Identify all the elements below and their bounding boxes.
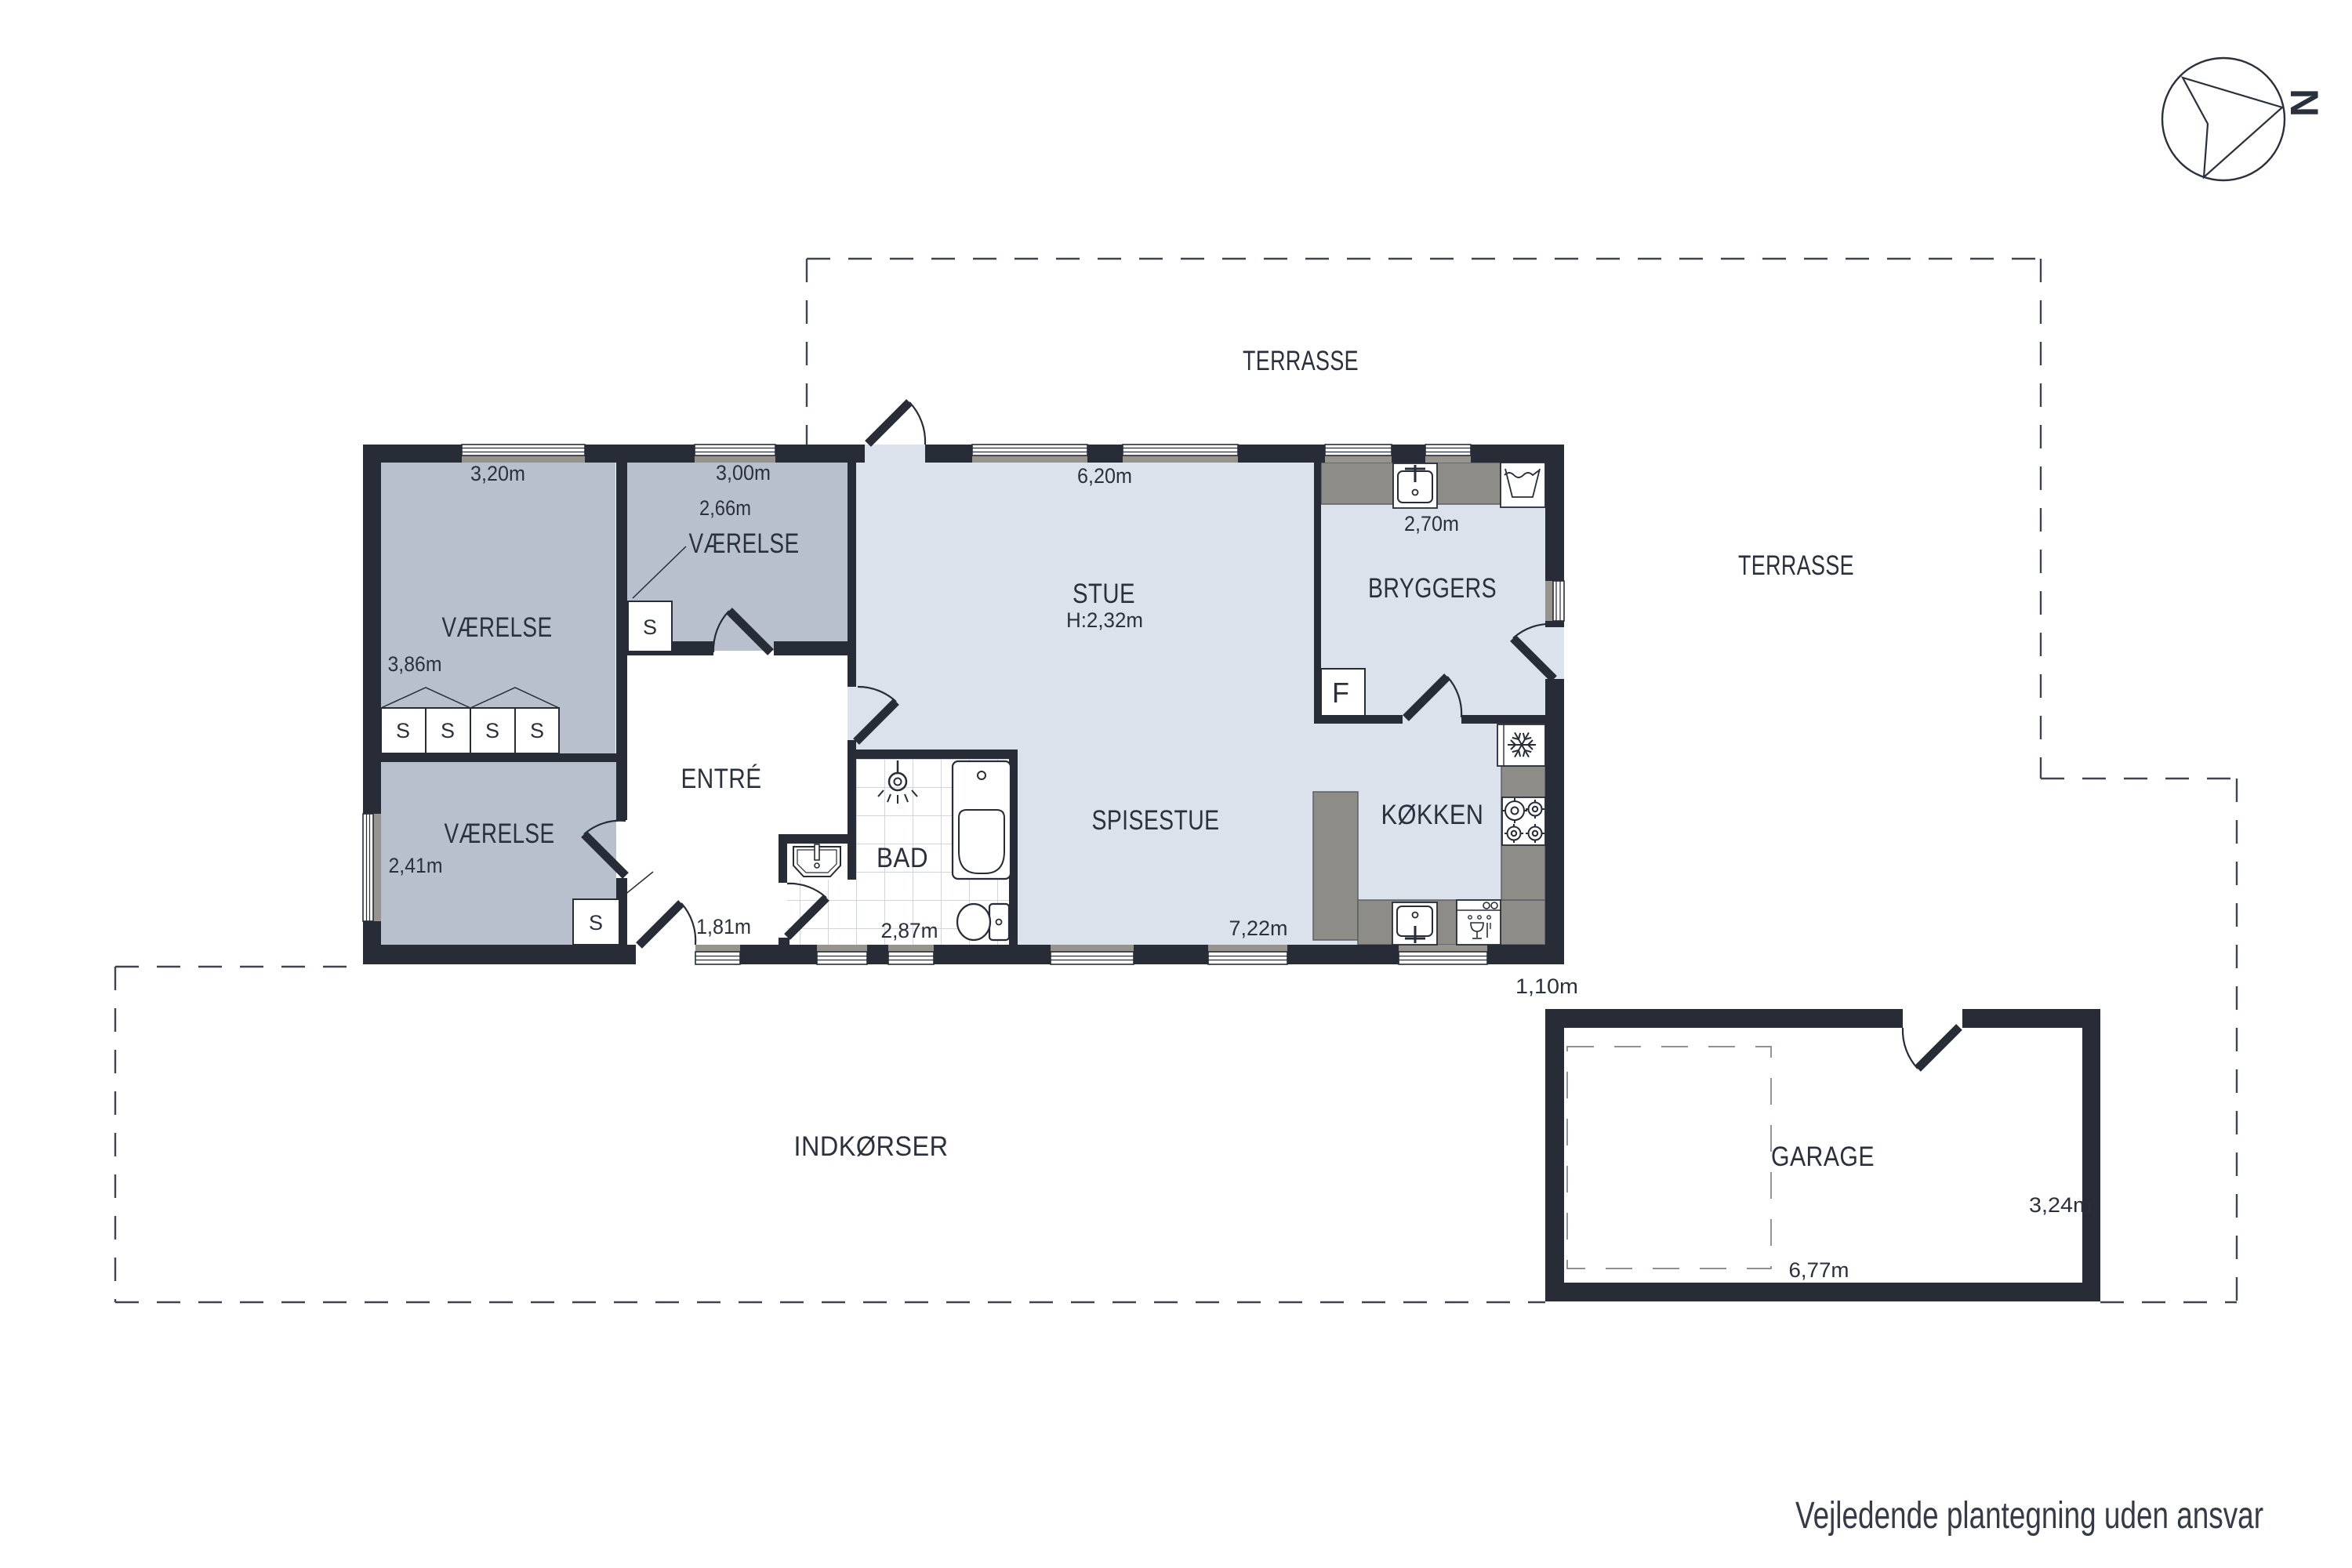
svg-text:S: S	[589, 911, 603, 935]
svg-text:S: S	[485, 719, 499, 742]
svg-text:6,20m: 6,20m	[1077, 464, 1132, 488]
svg-text:BAD: BAD	[877, 843, 928, 873]
svg-text:Vejledende plantegning uden an: Vejledende plantegning uden ansvar	[1795, 1495, 2263, 1537]
svg-text:VÆRELSE: VÆRELSE	[689, 528, 800, 559]
svg-text:2,87m: 2,87m	[881, 919, 938, 942]
svg-text:3,86m: 3,86m	[388, 652, 442, 676]
svg-text:1,81m: 1,81m	[696, 915, 751, 938]
svg-text:N: N	[2282, 89, 2326, 117]
svg-text:TERRASSE: TERRASSE	[1243, 346, 1359, 376]
svg-text:VÆRELSE: VÆRELSE	[445, 818, 555, 849]
svg-text:INDKØRSER: INDKØRSER	[794, 1131, 949, 1162]
svg-text:ENTRÉ: ENTRÉ	[681, 764, 762, 794]
svg-text:2,41m: 2,41m	[389, 854, 443, 877]
svg-text:S: S	[396, 719, 410, 742]
svg-text:7,22m: 7,22m	[1229, 916, 1288, 940]
svg-text:GARAGE: GARAGE	[1771, 1142, 1875, 1172]
svg-text:3,00m: 3,00m	[716, 461, 771, 485]
svg-text:3,20m: 3,20m	[470, 462, 525, 485]
svg-text:1,10m: 1,10m	[1515, 975, 1578, 998]
svg-text:STUE: STUE	[1073, 579, 1135, 609]
svg-text:F: F	[1332, 677, 1349, 709]
svg-text:SPISESTUE: SPISESTUE	[1092, 805, 1220, 836]
svg-text:S: S	[441, 719, 455, 742]
svg-text:S: S	[530, 719, 544, 742]
svg-text:KØKKEN: KØKKEN	[1381, 800, 1484, 830]
svg-text:2,70m: 2,70m	[1404, 512, 1459, 535]
svg-text:3,24m: 3,24m	[2029, 1193, 2092, 1217]
svg-text:S: S	[643, 615, 657, 639]
svg-text:6,77m: 6,77m	[1789, 1258, 1849, 1282]
svg-text:VÆRELSE: VÆRELSE	[442, 612, 553, 643]
svg-text:H:2,32m: H:2,32m	[1066, 608, 1143, 632]
svg-text:2,66m: 2,66m	[699, 496, 751, 520]
svg-text:TERRASSE: TERRASSE	[1738, 550, 1854, 581]
svg-text:BRYGGERS: BRYGGERS	[1368, 573, 1497, 604]
